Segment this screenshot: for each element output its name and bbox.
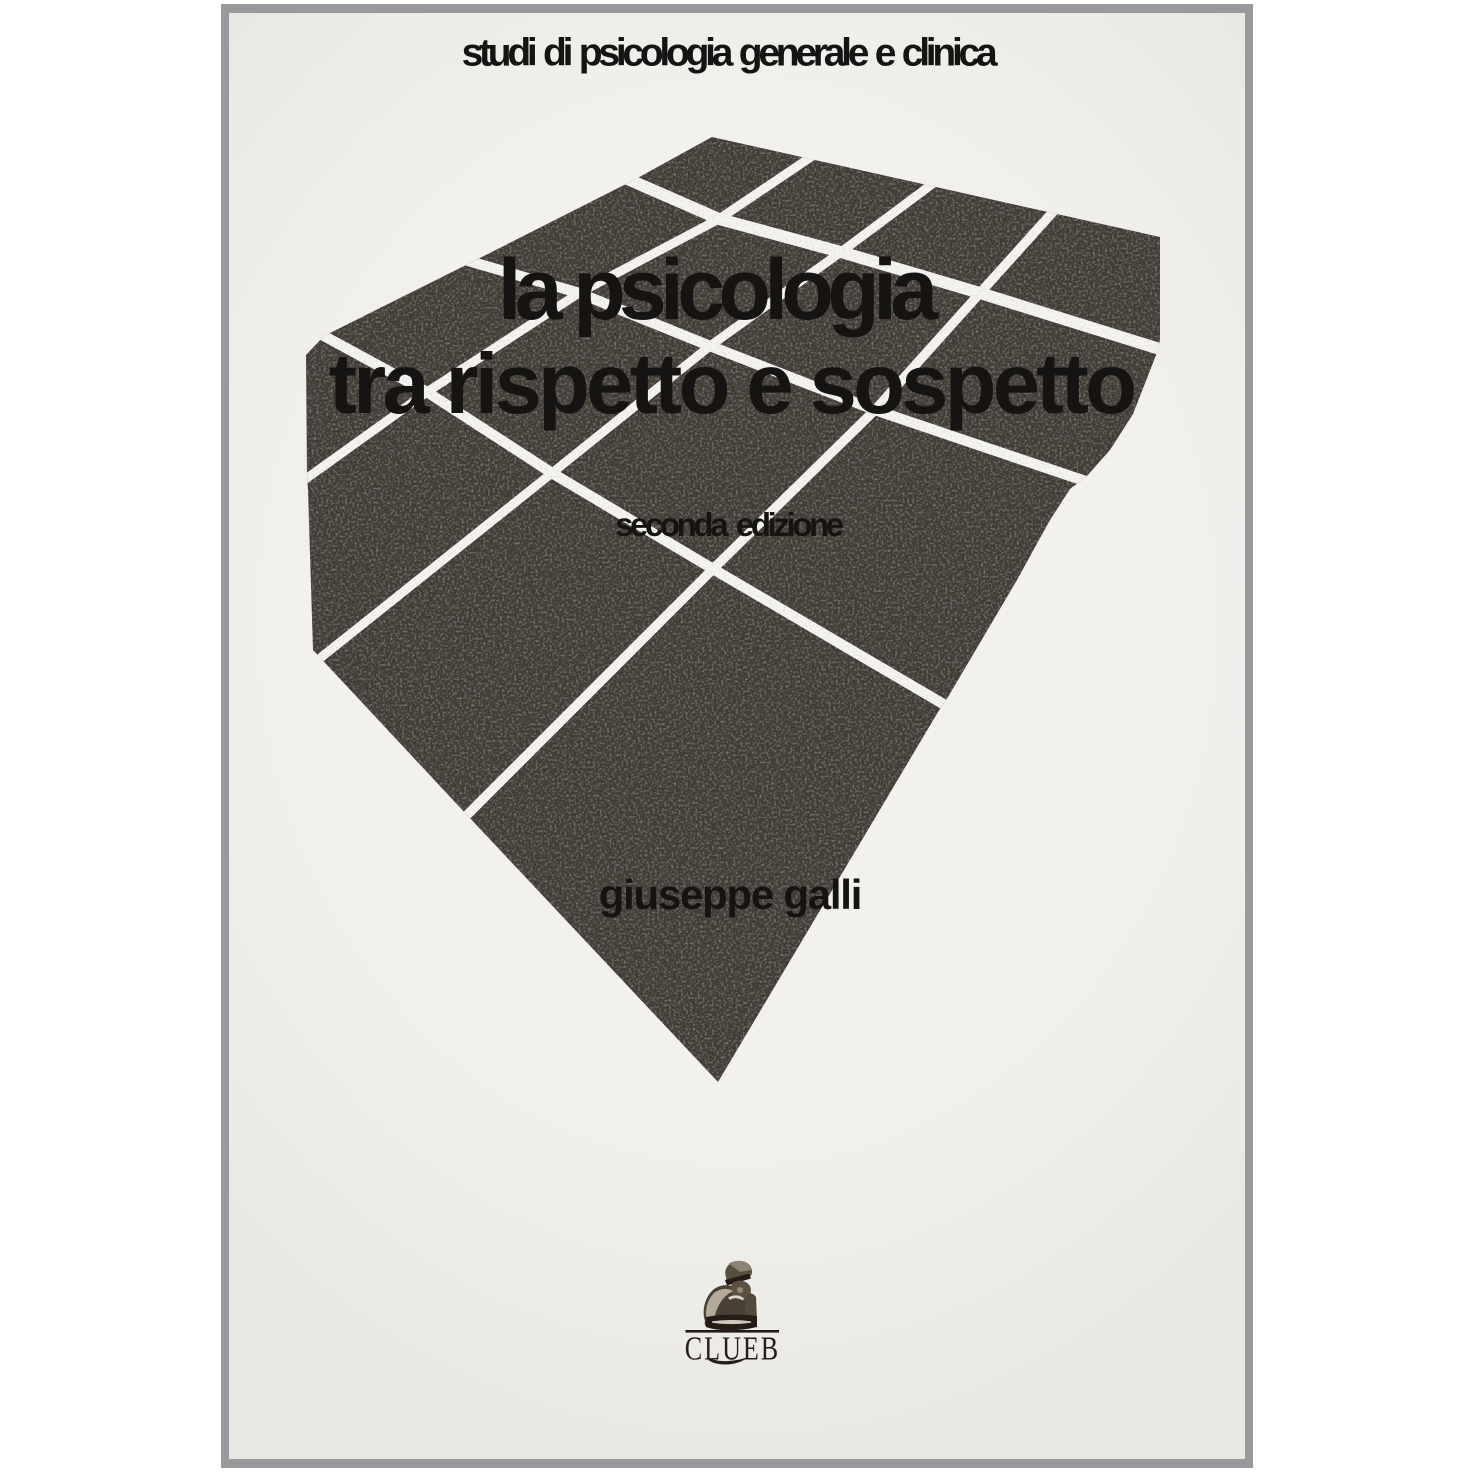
svg-text:seconda edizione: seconda edizione	[615, 506, 844, 543]
svg-text:giuseppe galli: giuseppe galli	[599, 871, 861, 918]
svg-text:la psicologia: la psicologia	[498, 242, 940, 338]
svg-text:tra rispetto e sospetto: tra rispetto e sospetto	[329, 337, 1134, 432]
svg-text:studi di psicologia generale e: studi di psicologia generale e clinica	[462, 31, 998, 74]
